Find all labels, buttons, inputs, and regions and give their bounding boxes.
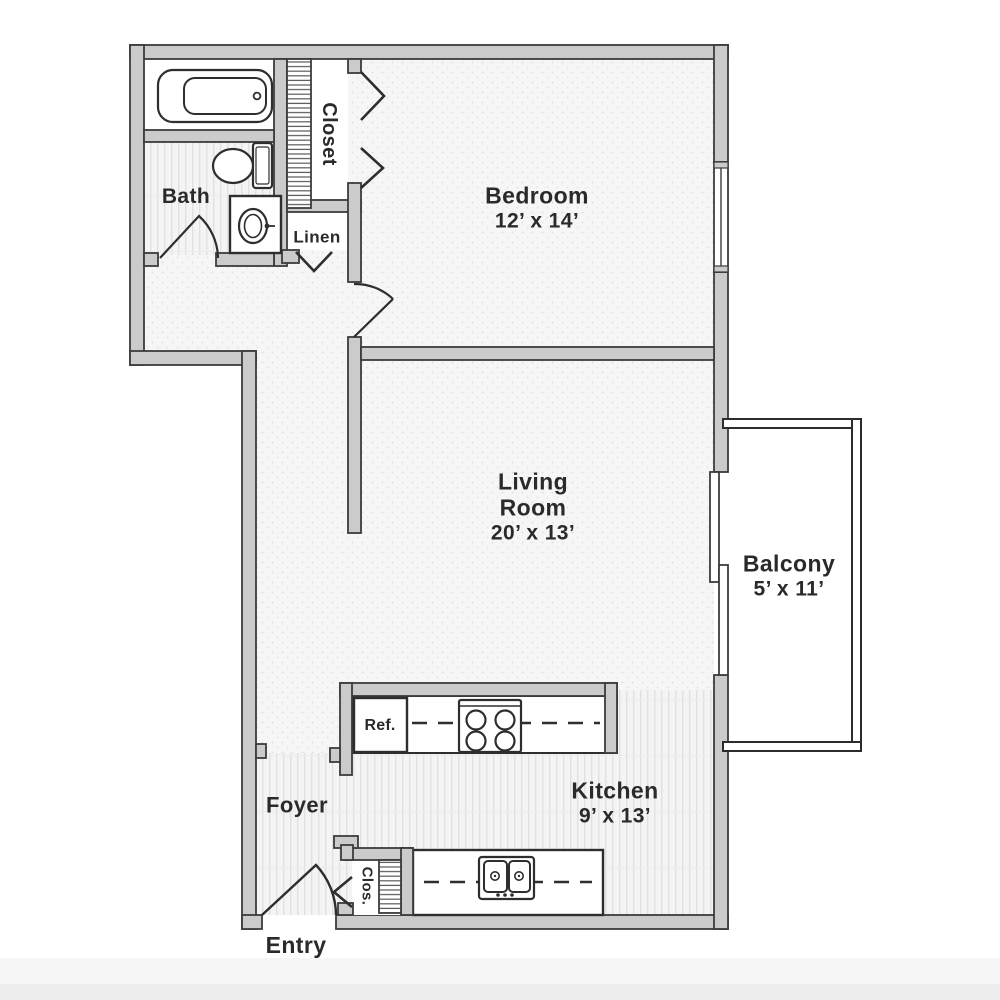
- refrigerator-label: Ref.: [364, 717, 395, 735]
- bathroom-sink: [230, 196, 281, 253]
- bottom-artifact-band: [0, 958, 1000, 1000]
- counter-wall-right: [605, 683, 617, 753]
- living-room-dimensions: 20’ x 13’: [491, 521, 575, 545]
- sliding-panel-right: [719, 565, 728, 675]
- kitchen-sink: [479, 857, 534, 899]
- stove: [459, 700, 521, 752]
- bedroom-label: Bedroom 12’ x 14’: [485, 183, 589, 232]
- wall-right-2: [714, 272, 728, 472]
- clos-wall-stem: [341, 845, 353, 860]
- clos-wall-right: [401, 848, 413, 915]
- wall-top: [130, 45, 728, 59]
- balcony-name: Balcony: [743, 551, 835, 577]
- floorplan: Bath Closet Linen Bedroom 12’ x 14’ Livi…: [0, 0, 1000, 1000]
- wall-right-3: [714, 675, 728, 929]
- living-room-name-line2: Room: [491, 495, 575, 521]
- living-room-label: Living Room 20’ x 13’: [491, 469, 575, 544]
- wall-left-upper: [130, 45, 144, 365]
- balcony-rail-right: [852, 419, 861, 751]
- sliding-panel-left: [710, 472, 719, 582]
- bedroom-dimensions: 12’ x 14’: [485, 209, 589, 233]
- living-room-name-line1: Living: [491, 469, 575, 495]
- balcony-rail-top: [723, 419, 861, 428]
- wall-left-lower: [242, 351, 256, 929]
- wall-right-1: [714, 45, 728, 162]
- burner: [467, 732, 486, 751]
- bath-label: Bath: [162, 185, 210, 209]
- counter-wall-left: [340, 683, 352, 775]
- clos-shelf-hatch: [379, 860, 401, 913]
- burner: [496, 711, 515, 730]
- wall-closet-stub-top: [348, 59, 361, 73]
- wall-hall-upper: [348, 183, 361, 282]
- wall-bath-bottom-left: [144, 253, 158, 266]
- small-closet-label: Clos.: [358, 867, 375, 906]
- wall-bath-bottom-right: [216, 253, 274, 266]
- kitchen-name: Kitchen: [571, 778, 658, 804]
- foyer-label: Foyer: [266, 794, 328, 819]
- linen-label: Linen: [293, 227, 340, 246]
- closet-label: Closet: [318, 102, 340, 166]
- wall-step: [130, 351, 256, 365]
- wall-bedroom-living-divider: [361, 347, 714, 360]
- balcony-rail-bottom: [723, 742, 861, 751]
- balcony-dimensions: 5’ x 11’: [743, 577, 835, 601]
- wall-bottom-right: [336, 915, 728, 929]
- balcony-label: Balcony 5’ x 11’: [743, 551, 835, 600]
- bathtub: [158, 70, 272, 122]
- wall-hall-lower: [348, 337, 361, 533]
- entry-label: Entry: [266, 933, 327, 959]
- kitchen-label: Kitchen 9’ x 13’: [571, 778, 658, 827]
- wall-bottom-left: [242, 915, 262, 929]
- bedroom-name: Bedroom: [485, 183, 589, 209]
- wall-foyer-jamb-left: [256, 744, 266, 758]
- kitchen-dimensions: 9’ x 13’: [571, 804, 658, 828]
- counter-jamb-left: [330, 748, 340, 762]
- kitchen-floor-right: [617, 690, 714, 753]
- counter-wall-top: [340, 683, 617, 696]
- burner: [496, 732, 515, 751]
- bedroom-window: [714, 162, 728, 272]
- tub-apron: [144, 130, 274, 142]
- kitchen-counter-lower: [413, 850, 603, 915]
- burner: [467, 711, 486, 730]
- closet-shelf-hatch: [287, 59, 311, 208]
